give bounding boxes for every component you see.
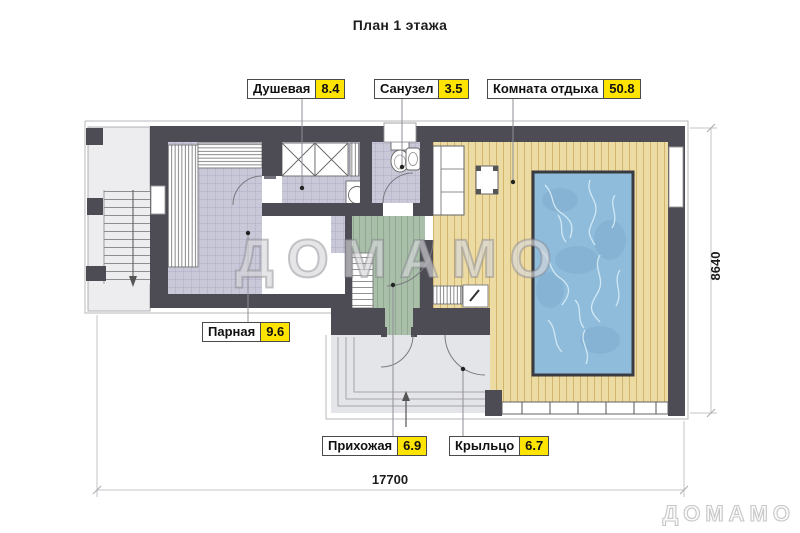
exterior-stairs [86, 127, 150, 311]
room-area-badge: 6.7 [519, 437, 548, 455]
room-name: Душевая [248, 80, 315, 98]
room-name: Парная [203, 323, 260, 341]
room-label-shower: Душевая 8.4 [247, 79, 345, 99]
room-area-badge: 8.4 [315, 80, 344, 98]
room-name: Санузел [375, 80, 438, 98]
room-label-steam: Парная 9.6 [202, 322, 290, 342]
room-label-wc: Санузел 3.5 [374, 79, 469, 99]
room-label-porch: Крыльцо 6.7 [449, 436, 549, 456]
dimension-width: 17700 [340, 472, 440, 487]
room-area-badge: 9.6 [260, 323, 289, 341]
room-area-badge: 50.8 [603, 80, 639, 98]
floor-plan-page: План 1 этажа [0, 0, 800, 533]
room-name: Крыльцо [450, 437, 519, 455]
room-label-lounge: Комната отдыха 50.8 [487, 79, 641, 99]
dimension-height: 8640 [708, 236, 724, 296]
room-area-badge: 3.5 [438, 80, 467, 98]
room-name: Прихожая [323, 437, 397, 455]
pool [533, 172, 633, 375]
room-area-badge: 6.9 [397, 437, 426, 455]
room-label-hall: Прихожая 6.9 [322, 436, 427, 456]
room-name: Комната отдыха [488, 80, 603, 98]
